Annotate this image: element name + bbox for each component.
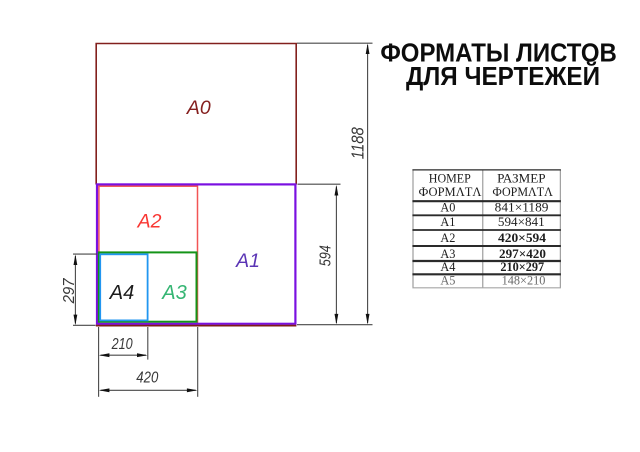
svg-text:594: 594: [317, 245, 334, 266]
svg-text:148×210: 148×210: [502, 274, 546, 288]
svg-text:А0: А0: [440, 201, 455, 215]
svg-text:210: 210: [111, 336, 133, 353]
svg-text:A1: A1: [235, 250, 260, 272]
svg-text:297: 297: [61, 277, 78, 304]
svg-text:А5: А5: [440, 274, 455, 288]
svg-text:1188: 1188: [348, 127, 368, 159]
svg-text:А2: А2: [440, 231, 455, 245]
svg-text:А4: А4: [440, 260, 455, 274]
svg-text:594×841: 594×841: [498, 215, 545, 229]
svg-text:210×297: 210×297: [500, 260, 544, 274]
svg-text:А3: А3: [440, 247, 455, 261]
svg-text:РАЗМЕР: РАЗМЕР: [497, 171, 546, 185]
svg-text:A4: A4: [109, 282, 134, 304]
svg-text:297×420: 297×420: [499, 247, 546, 261]
svg-text:А1: А1: [440, 215, 455, 229]
svg-text:A0: A0: [186, 97, 211, 119]
svg-text:ФОРМΛТΛ: ФОРМΛТΛ: [419, 185, 483, 199]
svg-text:420: 420: [136, 370, 158, 387]
svg-text:ФОРМΛТΛ: ФОРМΛТΛ: [492, 185, 553, 199]
svg-text:841×1189: 841×1189: [495, 201, 549, 215]
svg-text:НОМЕР: НОМЕР: [429, 171, 471, 185]
svg-text:ДЛЯ ЧЕРТЕЖЕЙ: ДЛЯ ЧЕРТЕЖЕЙ: [406, 61, 600, 91]
svg-text:A2: A2: [137, 211, 162, 233]
svg-text:420×594: 420×594: [498, 231, 546, 245]
svg-text:A3: A3: [161, 282, 186, 304]
